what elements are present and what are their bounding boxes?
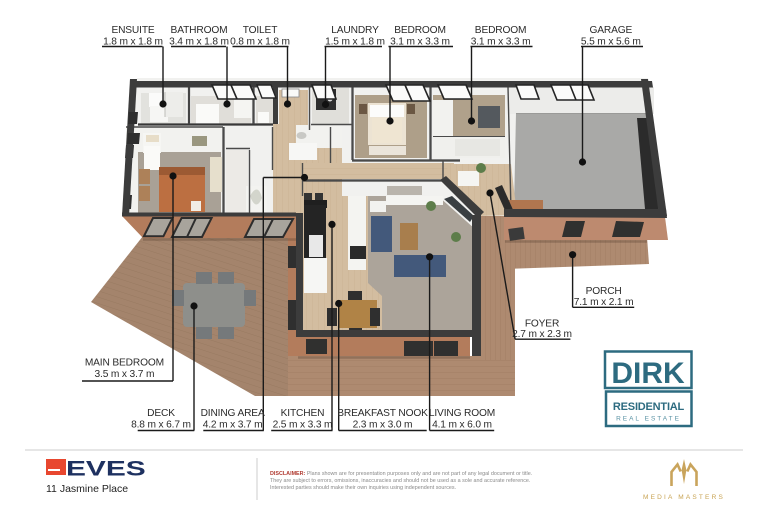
svg-text:RESIDENTIAL: RESIDENTIAL bbox=[613, 401, 685, 413]
svg-text:TOILET: TOILET bbox=[243, 25, 278, 36]
svg-text:Interested parties should make: Interested parties should make their own… bbox=[270, 485, 456, 491]
svg-text:PORCH: PORCH bbox=[586, 286, 622, 297]
svg-text:FOYER: FOYER bbox=[525, 319, 559, 330]
svg-text:EVES: EVES bbox=[66, 456, 146, 481]
svg-text:11 Jasmine Place: 11 Jasmine Place bbox=[46, 483, 128, 495]
svg-text:KITCHEN: KITCHEN bbox=[281, 408, 325, 419]
svg-text:3.4 m x 1.8 m: 3.4 m x 1.8 m bbox=[169, 37, 229, 48]
svg-text:MAIN BEDROOM: MAIN BEDROOM bbox=[85, 358, 164, 369]
svg-text:DISCLAIMER: Plans shown are fo: DISCLAIMER: Plans shown are for presenta… bbox=[270, 471, 532, 477]
svg-text:They are subject to errors, om: They are subject to errors, omissions, i… bbox=[270, 478, 530, 484]
svg-text:3.5 m x 3.7 m: 3.5 m x 3.7 m bbox=[95, 369, 155, 380]
svg-text:BATHROOM: BATHROOM bbox=[171, 25, 228, 36]
svg-text:DIRK: DIRK bbox=[611, 357, 685, 390]
svg-text:2.7 m x 2.3 m: 2.7 m x 2.3 m bbox=[512, 329, 572, 340]
svg-text:8.8 m x 6.7 m: 8.8 m x 6.7 m bbox=[131, 420, 191, 431]
svg-text:2.3 m x 3.0 m: 2.3 m x 3.0 m bbox=[353, 420, 413, 431]
svg-text:BEDROOM: BEDROOM bbox=[475, 25, 527, 36]
svg-text:REAL ESTATE: REAL ESTATE bbox=[616, 416, 681, 423]
svg-text:LIVING ROOM: LIVING ROOM bbox=[429, 408, 495, 419]
svg-text:MEDIA MASTERS: MEDIA MASTERS bbox=[643, 494, 725, 501]
svg-text:5.5 m x 5.6 m: 5.5 m x 5.6 m bbox=[581, 37, 641, 48]
svg-text:4.2 m x 3.7 m: 4.2 m x 3.7 m bbox=[203, 420, 263, 431]
svg-text:ENSUITE: ENSUITE bbox=[111, 25, 154, 36]
svg-text:3.1 m x 3.3 m: 3.1 m x 3.3 m bbox=[390, 37, 450, 48]
svg-text:DECK: DECK bbox=[147, 408, 175, 419]
svg-text:1.8 m x 1.8 m: 1.8 m x 1.8 m bbox=[103, 37, 163, 48]
svg-text:0.8 m x 1.8 m: 0.8 m x 1.8 m bbox=[230, 37, 290, 48]
svg-text:BREAKFAST NOOK: BREAKFAST NOOK bbox=[337, 408, 428, 419]
svg-text:7.1 m x 2.1 m: 7.1 m x 2.1 m bbox=[574, 297, 634, 308]
svg-text:LAUNDRY: LAUNDRY bbox=[331, 25, 379, 36]
svg-text:4.1 m x 6.0 m: 4.1 m x 6.0 m bbox=[432, 420, 492, 431]
svg-text:2.5 m x 3.3 m: 2.5 m x 3.3 m bbox=[273, 420, 333, 431]
svg-text:BEDROOM: BEDROOM bbox=[394, 25, 446, 36]
svg-text:DINING AREA: DINING AREA bbox=[201, 408, 265, 419]
svg-text:3.1 m x 3.3 m: 3.1 m x 3.3 m bbox=[471, 37, 531, 48]
svg-text:GARAGE: GARAGE bbox=[589, 25, 632, 36]
svg-text:1.5 m x 1.8 m: 1.5 m x 1.8 m bbox=[325, 37, 385, 48]
